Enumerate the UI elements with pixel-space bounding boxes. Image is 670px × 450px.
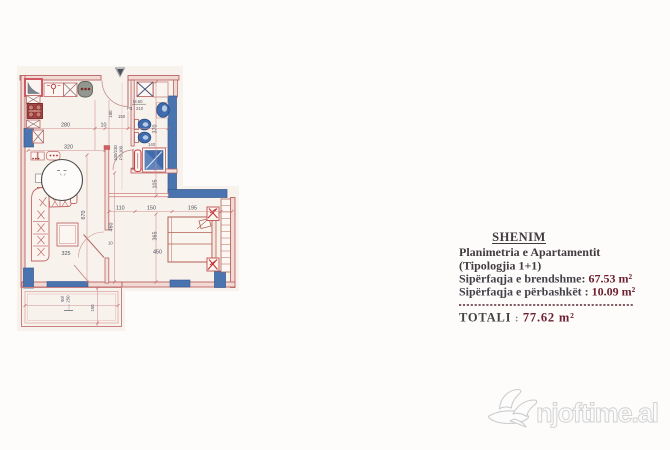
svg-text:100/230: 100/230 — [113, 145, 118, 161]
svg-text:njoftime.al: njoftime.al — [536, 398, 658, 428]
svg-text:10: 10 — [101, 123, 107, 129]
svg-text:Sipërfaqja e përbashkët : 10.0: Sipërfaqja e përbashkët : 10.09 m² — [459, 285, 636, 299]
svg-text:TOTALI : 77.62 m²: TOTALI : 77.62 m² — [459, 311, 575, 325]
svg-text:150: 150 — [147, 206, 156, 212]
svg-text:Planimetria e Apartamentit: Planimetria e Apartamentit — [459, 245, 600, 259]
svg-text:PS.100: PS.100 — [119, 145, 124, 160]
svg-text:460: 460 — [109, 223, 115, 232]
svg-text:150: 150 — [90, 304, 95, 312]
svg-text:325: 325 — [62, 251, 71, 257]
svg-text:90/: 90/ — [60, 295, 65, 302]
svg-text:250: 250 — [66, 295, 71, 303]
svg-text:180: 180 — [108, 110, 113, 118]
svg-text:450: 450 — [153, 250, 162, 256]
svg-text:(Tipologjia 1+1): (Tipologjia 1+1) — [459, 259, 541, 273]
svg-text:110: 110 — [116, 206, 125, 212]
svg-text:10: 10 — [108, 241, 113, 246]
svg-text:M.60: M.60 — [133, 99, 143, 104]
svg-text:370: 370 — [153, 125, 159, 134]
svg-text:140: 140 — [148, 142, 156, 147]
svg-text:Sipërfaqja e brendshme: 67.53: Sipërfaqja e brendshme: 67.53 m² — [459, 272, 632, 286]
svg-text:105: 105 — [153, 180, 159, 189]
svg-text:SHENIM: SHENIM — [492, 230, 546, 244]
svg-text:365: 365 — [153, 232, 159, 241]
svg-text:150: 150 — [118, 114, 126, 119]
svg-text:210: 210 — [136, 106, 144, 111]
svg-text:320: 320 — [64, 145, 73, 151]
svg-text:280: 280 — [61, 123, 70, 129]
svg-text:195: 195 — [188, 206, 197, 212]
svg-text:670: 670 — [81, 211, 87, 220]
svg-text:P3: P3 — [127, 106, 133, 111]
